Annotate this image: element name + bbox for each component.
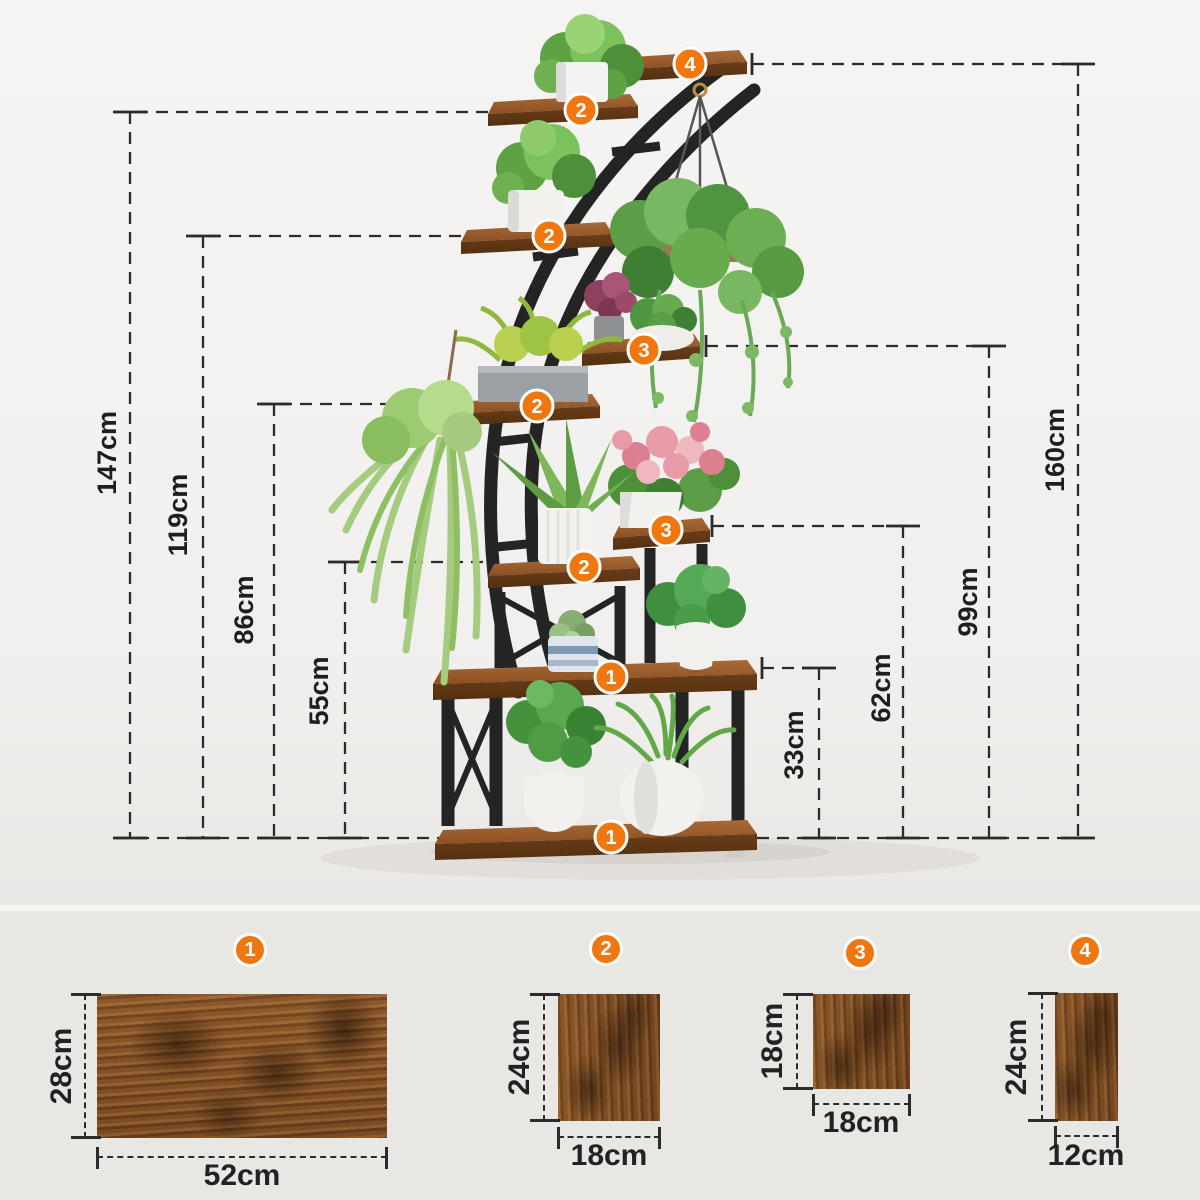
shelf-badge-2: 2 [531, 396, 542, 418]
board-4-wood [1055, 993, 1118, 1121]
board-3-height-line [796, 994, 798, 1089]
shelf-badge-2: 2 [578, 557, 589, 579]
height-label-86: 86cm [229, 575, 259, 644]
board-1-height-line [84, 994, 86, 1138]
height-label-160: 160cm [1040, 408, 1070, 492]
board-badge-1: 1 [233, 933, 267, 967]
shelf-badge-4: 4 [684, 54, 696, 76]
board-3-wood [813, 994, 910, 1089]
height-label-119: 119cm [163, 474, 193, 557]
stand-illustration: 147cm 119cm 86cm 55cm 33cm 62cm 99cm 160… [0, 0, 1200, 905]
height-label-55: 55cm [304, 656, 334, 725]
board-1-wood [97, 994, 387, 1138]
board-1-width-line [97, 1156, 387, 1158]
board-2-width-line [558, 1136, 660, 1138]
plant-stand-dimension-infographic: 147cm 119cm 86cm 55cm 33cm 62cm 99cm 160… [0, 0, 1200, 1200]
shelf-badge-1: 1 [605, 827, 616, 849]
board-2-height-line [543, 994, 545, 1121]
board-badge-2: 2 [589, 932, 623, 966]
height-label-147: 147cm [92, 411, 122, 495]
background [0, 0, 1200, 905]
shelf-badge-2: 2 [543, 226, 554, 248]
board-badge-4: 4 [1068, 934, 1102, 968]
height-label-62: 62cm [866, 653, 896, 722]
board-size-panel: 1 28cm 52cm 2 24cm 18cm 3 18cm 18cm 4 24… [0, 905, 1200, 1200]
board-4-width-label: 12cm [1048, 1139, 1125, 1173]
shelf-badge-3: 3 [638, 340, 649, 362]
board-2-wood [558, 994, 660, 1121]
board-1-height-label: 28cm [45, 1028, 79, 1105]
board-3-width-line [813, 1103, 910, 1105]
board-4-height-label: 24cm [1000, 1019, 1034, 1096]
height-label-99: 99cm [953, 567, 983, 636]
board-3-width-label: 18cm [823, 1106, 900, 1140]
board-3-height-label: 18cm [756, 1003, 790, 1080]
height-label-33: 33cm [779, 710, 809, 779]
board-2-height-label: 24cm [503, 1019, 537, 1096]
foot [726, 850, 744, 858]
board-1-width-label: 52cm [204, 1159, 281, 1193]
board-badge-3: 3 [843, 936, 877, 970]
shelf-badge-2: 2 [575, 100, 586, 122]
board-2-width-label: 18cm [571, 1139, 648, 1173]
shelf-badge-3: 3 [660, 520, 671, 542]
shelf-badge-1: 1 [605, 667, 616, 689]
board-4-height-line [1041, 993, 1043, 1121]
board-4-width-line [1055, 1135, 1118, 1137]
